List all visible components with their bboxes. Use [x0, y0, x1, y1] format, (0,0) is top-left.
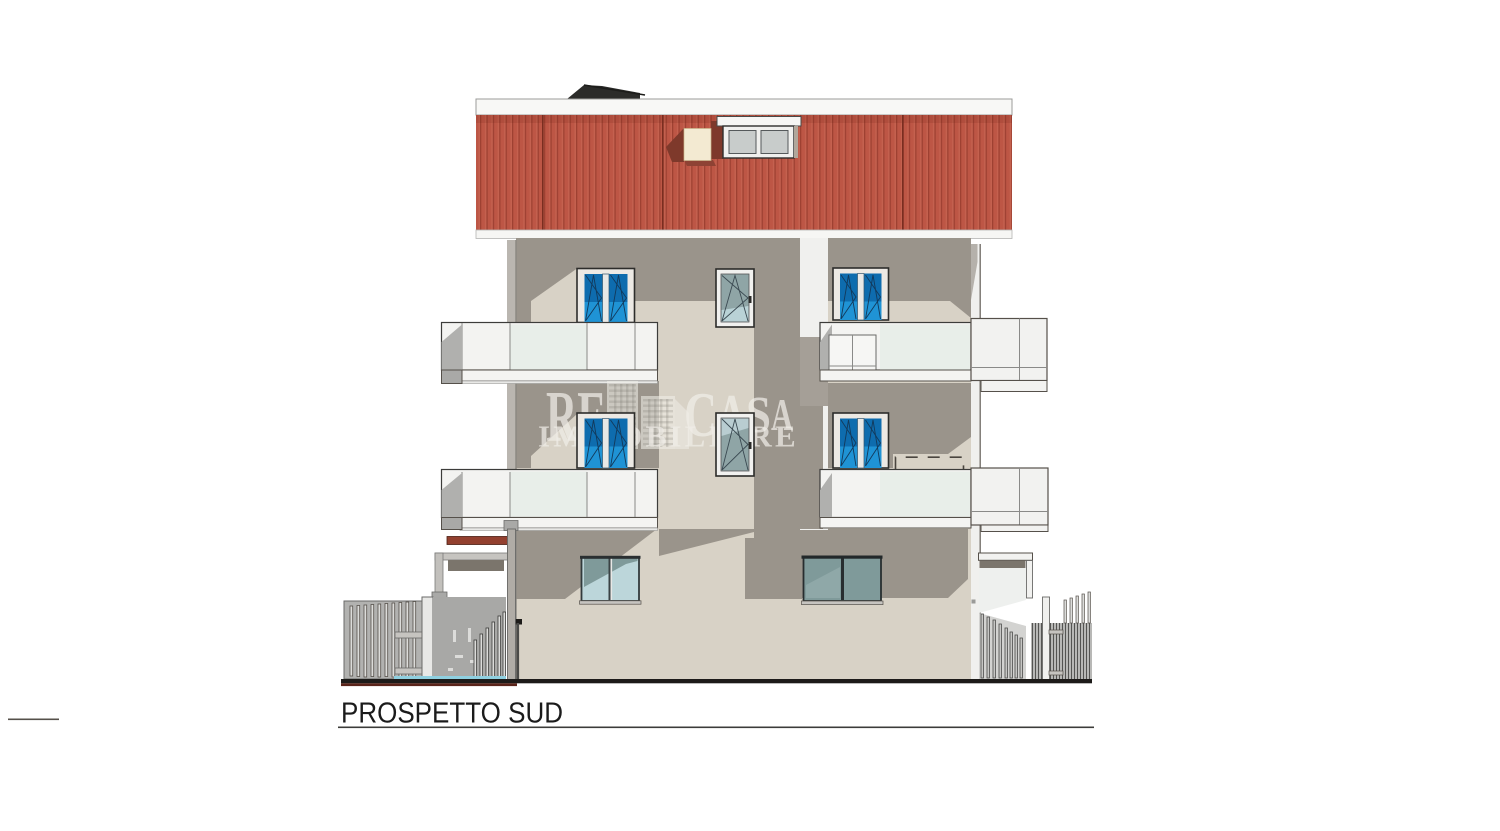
svg-text:PROSPETTO SUD: PROSPETTO SUD: [341, 698, 563, 730]
